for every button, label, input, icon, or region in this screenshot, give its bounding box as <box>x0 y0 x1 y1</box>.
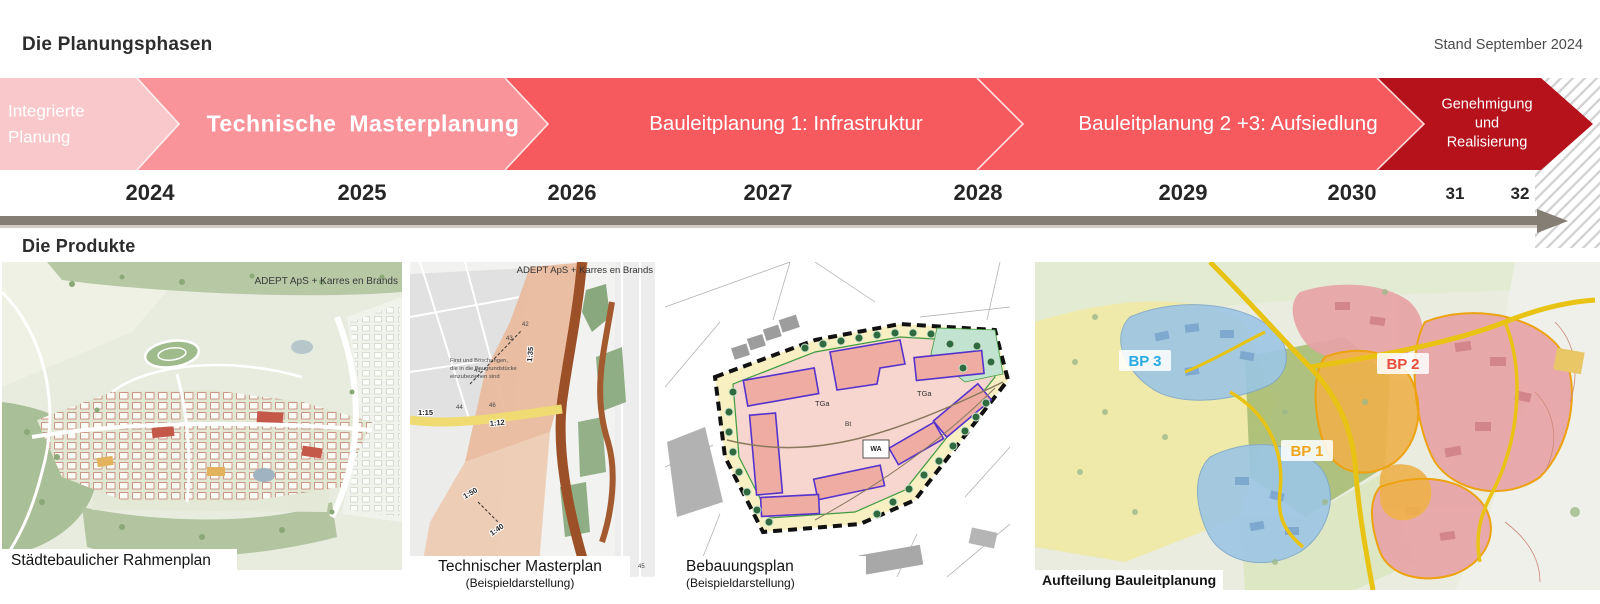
product-image-bebauungsplan: TGa TGa WA Bt <box>665 262 1010 577</box>
svg-text:1:12: 1:12 <box>489 418 505 428</box>
caption-masterplan: Technischer Masterplan (Beispieldarstell… <box>410 556 630 592</box>
slide: Die Planungsphasen Stand September 2024 … <box>0 0 1600 604</box>
year-2028: 2028 <box>954 180 1003 206</box>
svg-text:WA: WA <box>870 446 881 453</box>
product-image-staedtebaulicher-rahmenplan: ADEPT ApS + Karres en Brands <box>2 262 402 570</box>
svg-text:1:35: 1:35 <box>525 346 535 362</box>
phase-label-integrierte-planung: Integrierte Planung <box>8 99 85 150</box>
page-title: Die Planungsphasen <box>22 34 212 56</box>
svg-text:41: 41 <box>474 368 481 374</box>
caption-bebauungsplan: Bebauungsplan (Beispieldarstellung) <box>686 556 866 592</box>
timeline-arrow <box>0 206 1600 238</box>
product-image-technischer-masterplan: First und Böschungen, die in die Baugrun… <box>410 262 655 577</box>
timeline-arrow-shaft <box>0 216 1537 225</box>
svg-text:TGa: TGa <box>815 399 830 408</box>
bp3-label: BP 3 <box>1128 353 1161 370</box>
svg-text:First und Böschungen,: First und Böschungen, <box>450 358 508 364</box>
svg-text:1:15: 1:15 <box>418 408 433 417</box>
year-2031: 31 <box>1446 184 1465 204</box>
year-2025: 2025 <box>338 180 387 206</box>
phase-label-technische-masterplanung: Technische Masterplanung <box>207 111 520 138</box>
timeline-arrow-shadow <box>0 225 1537 228</box>
timeline-arrowhead <box>1537 209 1568 233</box>
bp2-label: BP 2 <box>1386 356 1419 373</box>
credit-masterplan: ADEPT ApS + Karres en Brands <box>517 265 654 276</box>
year-2027: 2027 <box>744 180 793 206</box>
year-2026: 2026 <box>548 180 597 206</box>
year-2030: 2030 <box>1328 180 1377 206</box>
svg-text:43: 43 <box>506 336 513 342</box>
year-2024: 2024 <box>126 180 175 206</box>
phase-label-bauleitplanung-1: Bauleitplanung 1: Infrastruktur <box>649 112 923 136</box>
year-2032: 32 <box>1511 184 1530 204</box>
svg-text:46: 46 <box>489 403 496 409</box>
credit-rahmenplan: ADEPT ApS + Karres en Brands <box>254 276 398 287</box>
phase-label-genehmigung: Genehmigung und Realisierung <box>1441 96 1532 153</box>
caption-rahmenplan: Städtebaulicher Rahmenplan <box>2 549 237 572</box>
status-date: Stand September 2024 <box>1434 37 1583 53</box>
svg-text:die in die Baugrundstücke: die in die Baugrundstücke <box>450 366 517 372</box>
product-image-aufteilung-bauleitplanung: BP 3 BP 1 BP 2 <box>1035 262 1600 590</box>
products-heading: Die Produkte <box>22 236 135 257</box>
phase-labels: Integrierte Planung Technische Masterpla… <box>0 78 1600 170</box>
svg-text:Bt: Bt <box>845 421 851 428</box>
svg-text:44: 44 <box>456 405 463 411</box>
bp1-label: BP 1 <box>1290 443 1323 460</box>
svg-text:45: 45 <box>638 564 645 570</box>
svg-text:42: 42 <box>522 322 529 328</box>
svg-text:einzubeziehen sind: einzubeziehen sind <box>450 374 500 380</box>
svg-text:TGa: TGa <box>917 389 932 398</box>
phase-label-bauleitplanung-2-3: Bauleitplanung 2 +3: Aufsiedlung <box>1078 112 1377 136</box>
caption-aufteilung: Aufteilung Bauleitplanung <box>1035 570 1223 590</box>
year-2029: 2029 <box>1159 180 1208 206</box>
